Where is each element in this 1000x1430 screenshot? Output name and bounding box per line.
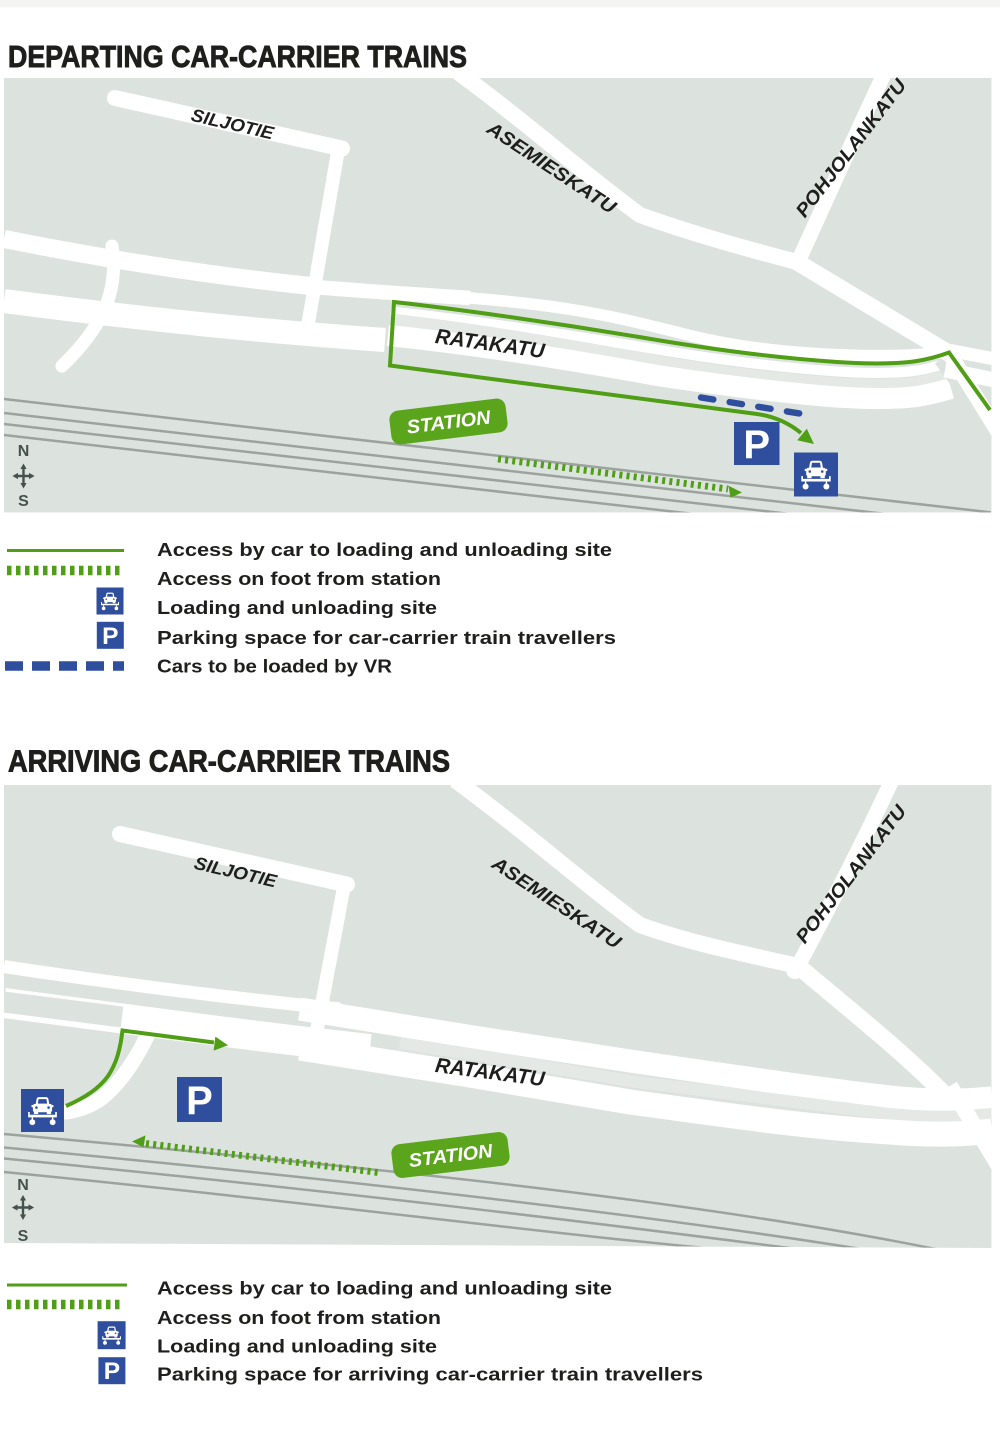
svg-text:Parking space for arriving car: Parking space for arriving car-carrier t…	[157, 1364, 703, 1385]
svg-text:S: S	[18, 493, 29, 510]
svg-text:P: P	[186, 1079, 213, 1123]
svg-text:Access on foot from station: Access on foot from station	[157, 1307, 441, 1328]
svg-text:DEPARTING CAR-CARRIER TRAINS: DEPARTING CAR-CARRIER TRAINS	[8, 39, 467, 74]
svg-text:P: P	[104, 1358, 120, 1385]
svg-text:ARRIVING CAR-CARRIER TRAINS: ARRIVING CAR-CARRIER TRAINS	[8, 744, 450, 779]
svg-text:Parking space for car-carrier: Parking space for car-carrier train trav…	[157, 627, 616, 648]
svg-text:S: S	[18, 1228, 29, 1245]
svg-text:P: P	[743, 423, 770, 467]
svg-text:Loading and unloading site: Loading and unloading site	[157, 597, 437, 618]
svg-text:Loading and unloading site: Loading and unloading site	[157, 1336, 437, 1357]
svg-text:Access by car to loading and u: Access by car to loading and unloading s…	[157, 1278, 612, 1299]
svg-text:Access by car to loading and u: Access by car to loading and unloading s…	[157, 539, 612, 560]
svg-text:N: N	[18, 443, 30, 460]
svg-text:Access on foot from station: Access on foot from station	[157, 568, 441, 589]
svg-text:N: N	[17, 1177, 29, 1194]
svg-text:Cars to be loaded by VR: Cars to be loaded by VR	[157, 655, 393, 676]
svg-text:P: P	[102, 623, 118, 650]
